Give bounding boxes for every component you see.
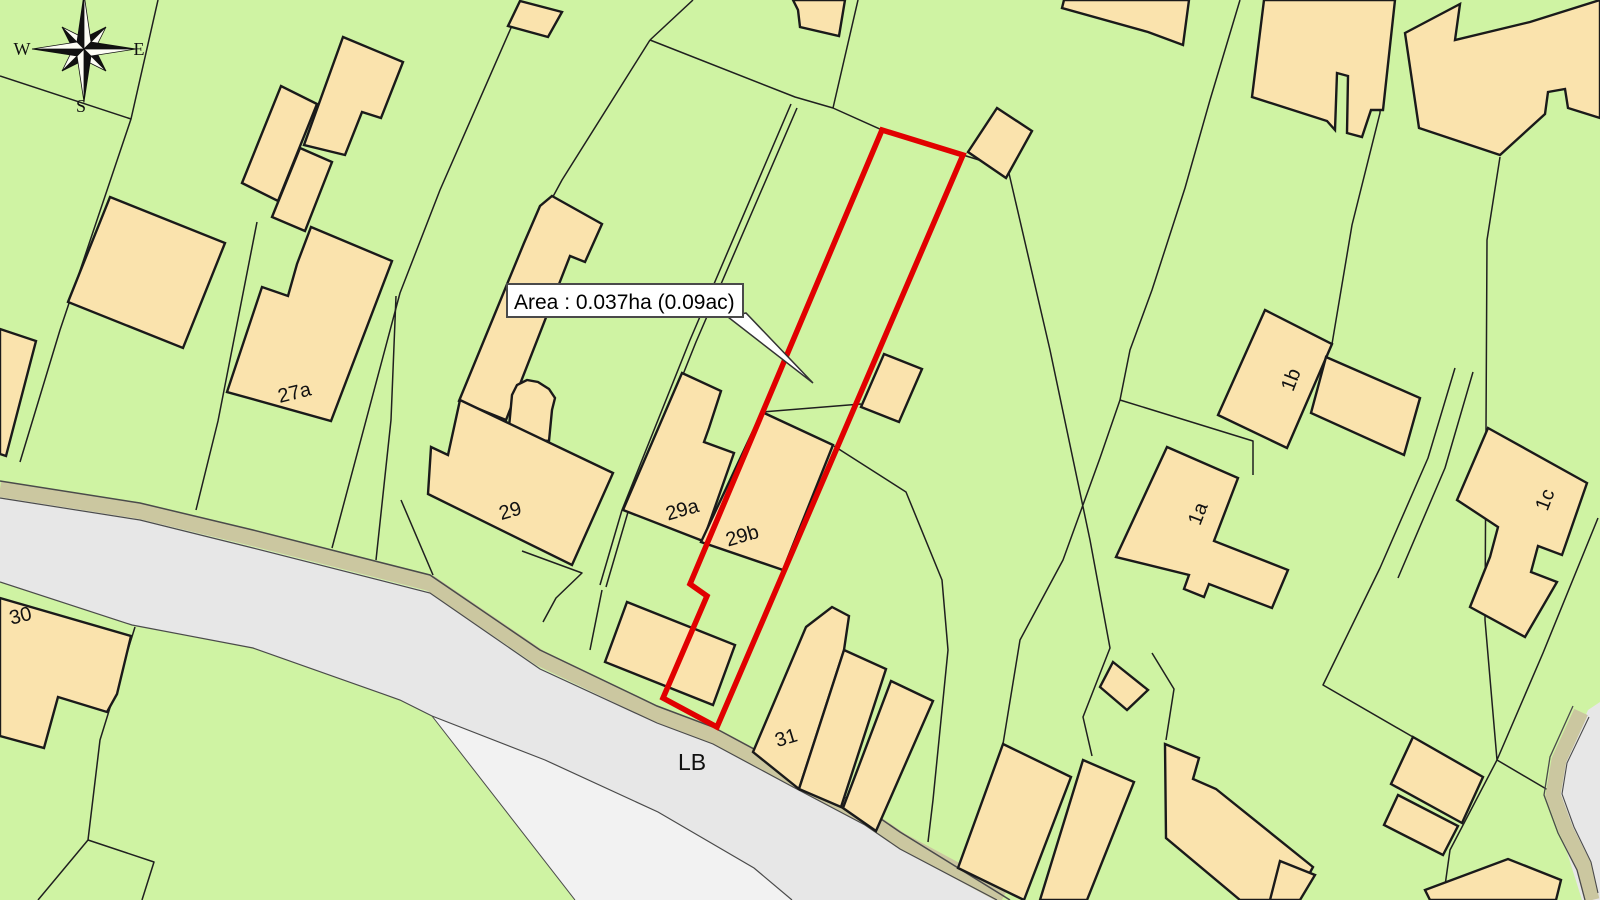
compass-label-east: E: [134, 39, 145, 59]
area-measurement-text: Area : 0.037ha (0.09ac): [514, 291, 735, 314]
parcel-label-lb: LB: [678, 749, 706, 775]
map-canvas: W E S 27a2929a29b3031LB1a1b1c Area : 0.0…: [0, 0, 1600, 900]
site-plan-map: W E S 27a2929a29b3031LB1a1b1c Area : 0.0…: [0, 0, 1600, 900]
compass-label-south: S: [76, 96, 86, 116]
compass-label-west: W: [14, 39, 31, 59]
